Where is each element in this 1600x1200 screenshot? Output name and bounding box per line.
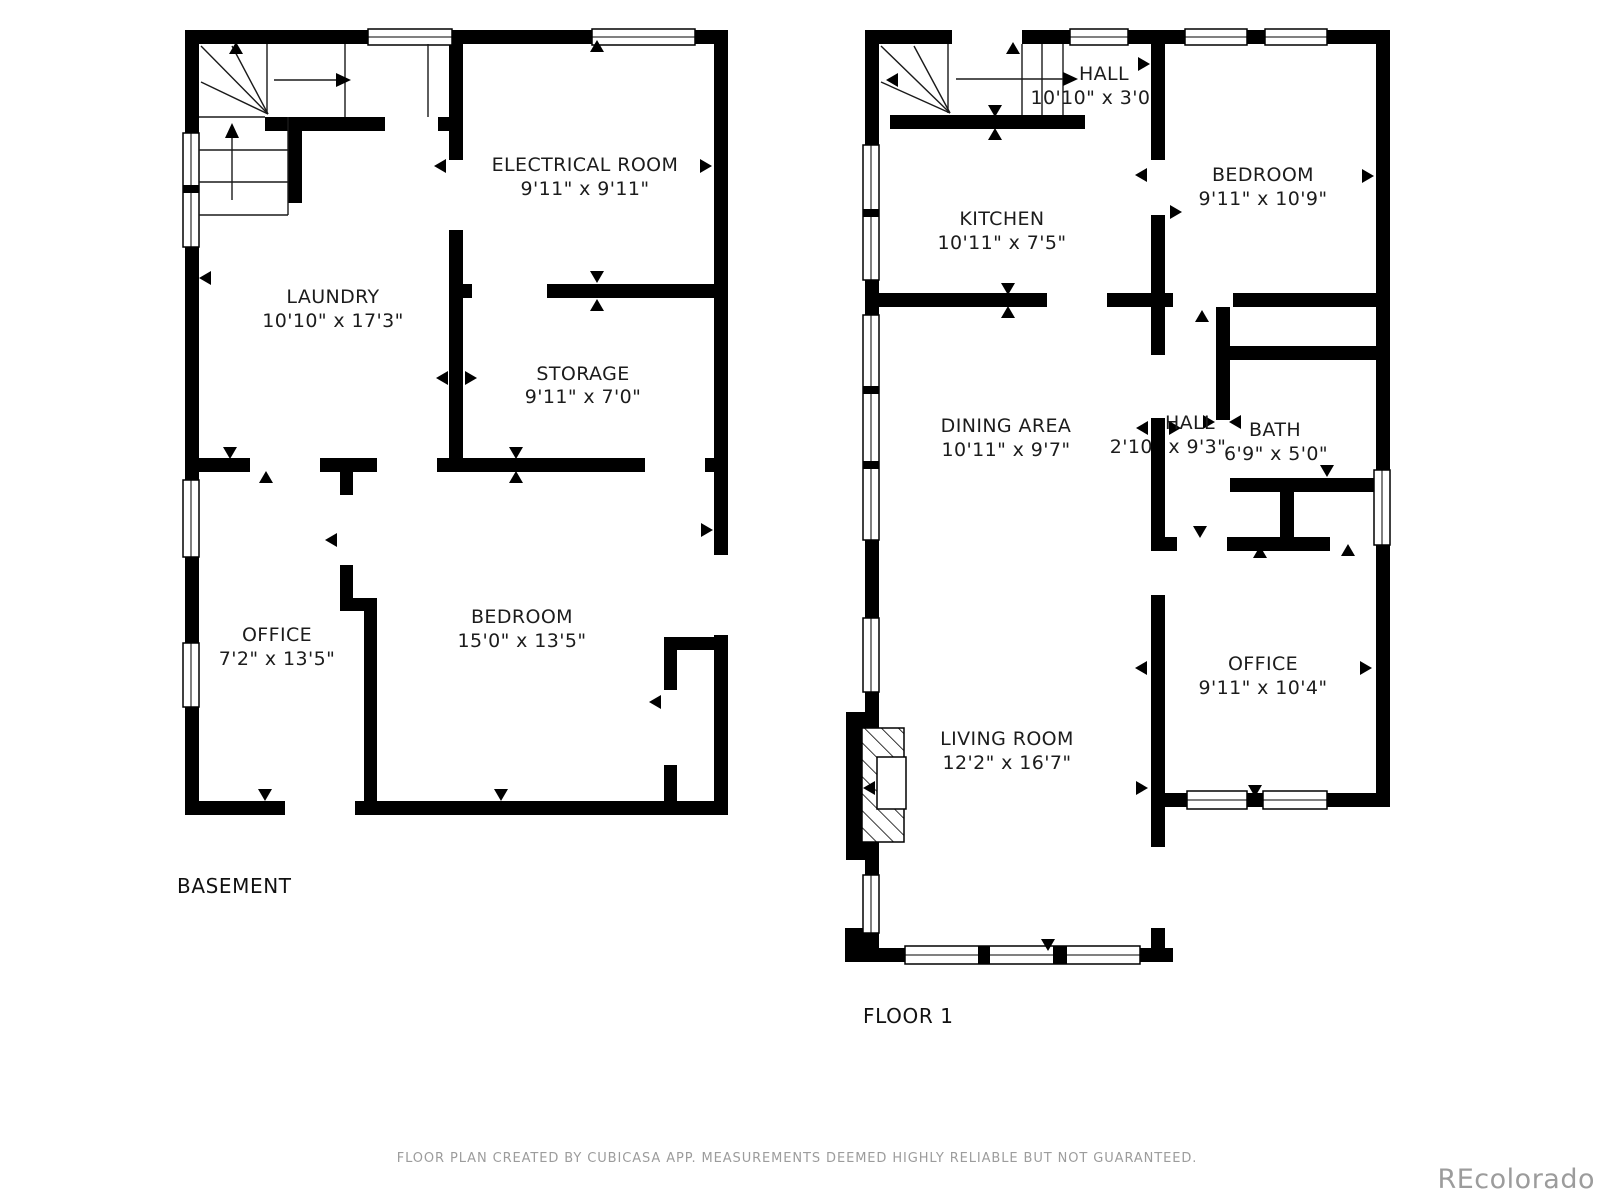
room-dims: 12'2" x 16'7" bbox=[943, 752, 1072, 774]
room-name: OFFICE bbox=[242, 624, 312, 646]
room-dims: 2'10" x 9'3" bbox=[1110, 436, 1227, 458]
floorplan-canvas: 10'10" x 3'0" 2'10" x 9'3" bbox=[0, 0, 1600, 1200]
room-name: LAUNDRY bbox=[286, 286, 379, 308]
fireplace bbox=[846, 712, 906, 860]
room-dims: 9'11" x 9'11" bbox=[521, 178, 650, 200]
disclaimer-text: FLOOR PLAN CREATED BY CUBICASA APP. MEAS… bbox=[397, 1151, 1198, 1166]
basement-title: BASEMENT bbox=[177, 874, 292, 898]
basement-room-labels: ELECTRICAL ROOM 9'11" x 9'11" STORAGE 9'… bbox=[219, 154, 679, 670]
floor1-title: FLOOR 1 bbox=[863, 1004, 954, 1028]
room-name: HALL bbox=[1079, 63, 1129, 85]
room-dims: 9'11" x 7'0" bbox=[525, 386, 642, 408]
labels-under-walls: 10'10" x 3'0" 2'10" x 9'3" bbox=[1031, 87, 1227, 458]
floor1-plan: HALL KITCHEN 10'11" x 7'5" BEDROOM 9'11"… bbox=[845, 28, 1390, 1028]
floorplan-page: 10'10" x 3'0" 2'10" x 9'3" bbox=[0, 0, 1600, 1200]
room-name: STORAGE bbox=[536, 363, 629, 385]
room-name: KITCHEN bbox=[959, 208, 1044, 230]
room-name: ELECTRICAL ROOM bbox=[492, 154, 679, 176]
room-dims: 15'0" x 13'5" bbox=[458, 630, 587, 652]
room-dims: 10'10" x 3'0" bbox=[1031, 87, 1160, 109]
recolorado-watermark: REcolorado bbox=[1437, 1164, 1595, 1195]
room-dims: 10'11" x 9'7" bbox=[942, 439, 1071, 461]
room-dims: 6'9" x 5'0" bbox=[1224, 443, 1328, 465]
room-dims: 9'11" x 10'9" bbox=[1199, 188, 1328, 210]
room-name: DINING AREA bbox=[941, 415, 1072, 437]
room-name: OFFICE bbox=[1228, 653, 1298, 675]
room-dims: 9'11" x 10'4" bbox=[1199, 677, 1328, 699]
room-name: BEDROOM bbox=[1212, 164, 1314, 186]
room-dims: 10'10" x 17'3" bbox=[262, 310, 403, 332]
room-name: LIVING ROOM bbox=[940, 728, 1074, 750]
floor1-room-labels: HALL KITCHEN 10'11" x 7'5" BEDROOM 9'11"… bbox=[938, 63, 1329, 774]
basement-plan: ELECTRICAL ROOM 9'11" x 9'11" STORAGE 9'… bbox=[177, 29, 730, 898]
room-dims: 10'11" x 7'5" bbox=[938, 232, 1067, 254]
room-dims: 7'2" x 13'5" bbox=[219, 648, 336, 670]
room-name: BATH bbox=[1249, 419, 1301, 441]
room-name: BEDROOM bbox=[471, 606, 573, 628]
room-name: HALL bbox=[1165, 412, 1215, 434]
